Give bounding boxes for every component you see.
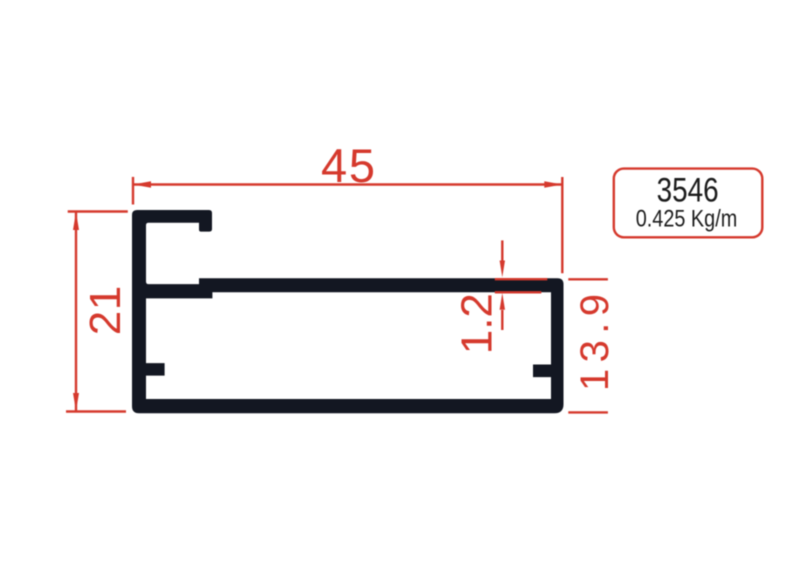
svg-text:21: 21 xyxy=(81,286,130,336)
svg-text:3546: 3546 xyxy=(657,172,719,210)
svg-text:1.2: 1.2 xyxy=(452,293,501,354)
svg-text:0.425 Kg/m: 0.425 Kg/m xyxy=(636,205,738,232)
svg-text:13.9: 13.9 xyxy=(573,294,617,391)
svg-text:45: 45 xyxy=(321,139,375,192)
